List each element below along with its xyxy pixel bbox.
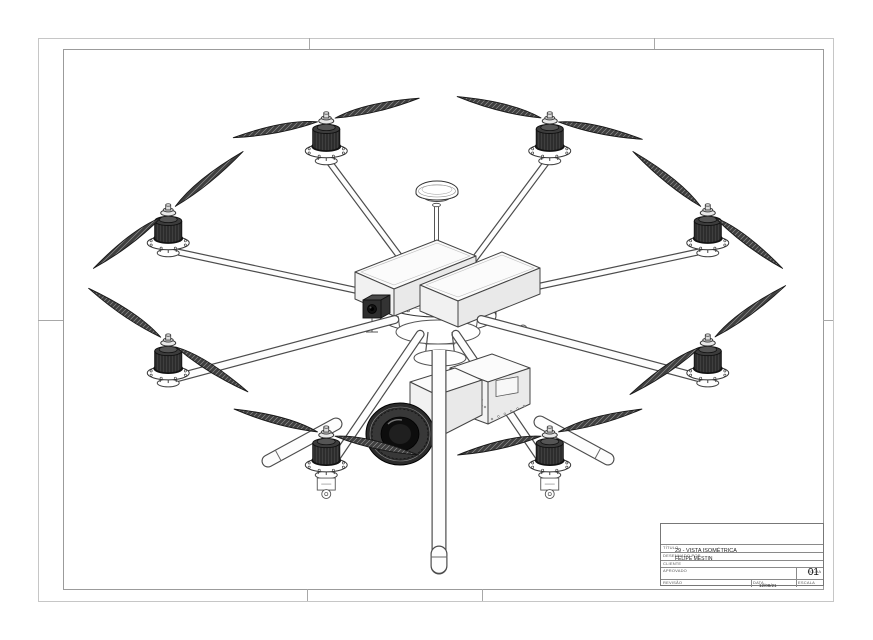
- title-block-row-revision-date-scale: REVISÃO DATA 12/08/21 ESCALA: [661, 579, 823, 587]
- date-value: 12/08/21: [759, 583, 777, 588]
- title-block-row-author: DESENHADO POR FELIPE MESTIN: [661, 552, 823, 560]
- propeller-blade: [559, 122, 643, 140]
- scale-label: ESCALA: [798, 581, 815, 585]
- sheet-number: 01: [808, 567, 819, 578]
- revision-label: REVISÃO: [663, 581, 682, 585]
- propeller-blade: [633, 152, 701, 207]
- propeller-blade: [715, 286, 786, 337]
- propeller-blade: [89, 288, 161, 337]
- motor-assembly: [529, 124, 571, 164]
- client-label: CLIENTE: [663, 562, 681, 566]
- camera-lens: [366, 403, 434, 465]
- title-block: TÍTULO 29 - VISTA ISOMÉTRICA DESENHADO P…: [660, 523, 824, 586]
- arm-tube: [168, 320, 395, 381]
- propeller-blade: [457, 97, 541, 118]
- date-cell: DATA 12/08/21: [751, 580, 796, 587]
- propeller-blade: [175, 152, 243, 207]
- center-landing-pole: [431, 350, 448, 566]
- title-block-row-title: TÍTULO 29 - VISTA ISOMÉTRICA: [661, 544, 823, 552]
- approved-label: APROVADO: [663, 569, 687, 573]
- title-block-row-client: CLIENTE: [661, 560, 823, 567]
- drawing-sheet: TÍTULO 29 - VISTA ISOMÉTRICA DESENHADO P…: [0, 0, 873, 640]
- propeller-blade: [233, 121, 317, 137]
- sheet-cell: FOLHA 01: [796, 568, 823, 579]
- propeller-blade: [559, 409, 642, 432]
- motor-assembly: [305, 124, 347, 164]
- propeller-blade: [335, 98, 419, 118]
- title-block-row-approved-sheet: APROVADO FOLHA 01: [661, 567, 823, 579]
- scale-cell: ESCALA: [796, 580, 823, 587]
- propeller-blade: [234, 409, 317, 432]
